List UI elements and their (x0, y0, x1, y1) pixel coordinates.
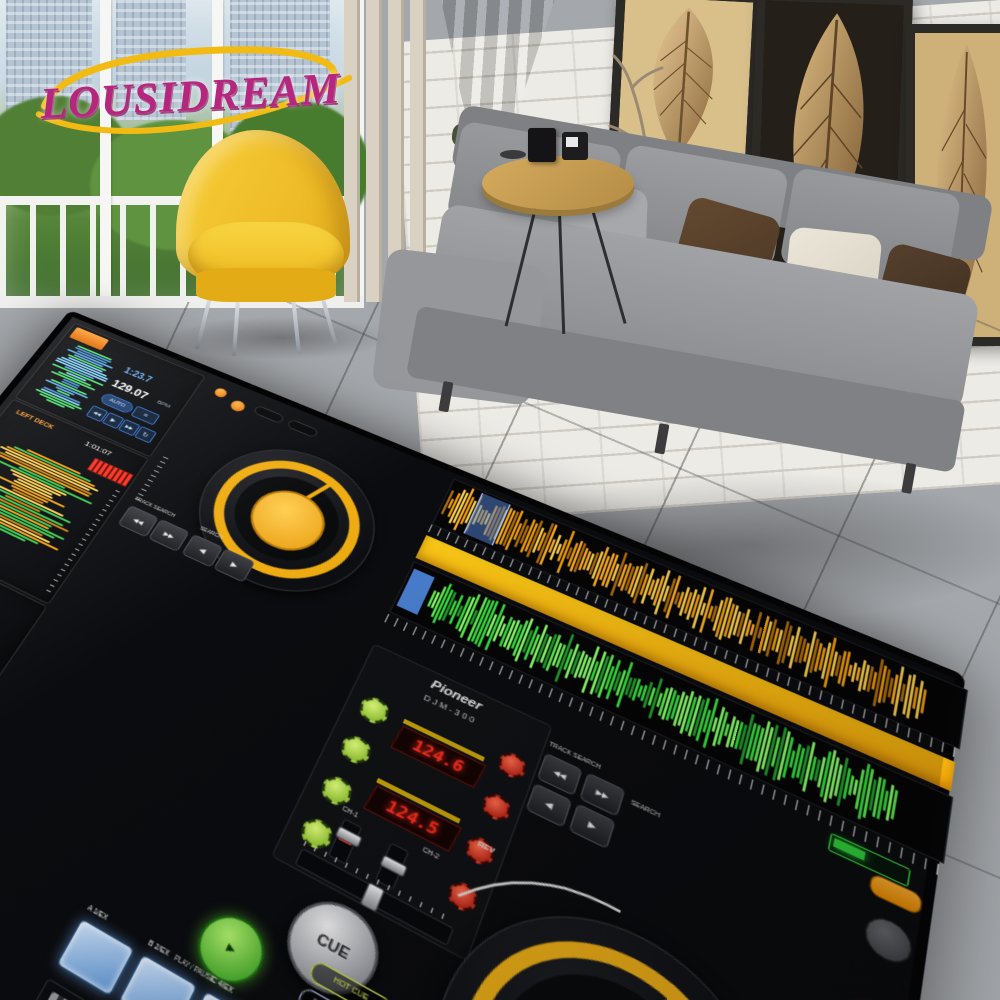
remain-time: 3:29.9 (0, 605, 2, 636)
table-speaker (562, 132, 588, 160)
waveform-mini (25, 341, 122, 420)
bpm-label: BPM (156, 400, 171, 409)
prev-glyph: ◀◀ (552, 767, 567, 780)
pad-b-label: B 2/EX (146, 941, 170, 959)
browse-knob (862, 910, 915, 971)
utility-button (253, 405, 285, 424)
prev-glyph: ◀◀ (132, 516, 145, 526)
gain-knob-red (479, 790, 514, 825)
table-clock (528, 128, 556, 162)
yellow-armchair (176, 130, 372, 346)
play-pause-button: ▶ (186, 903, 276, 997)
next-glyph: ▶▶ (162, 530, 175, 540)
eq-knob-green (356, 693, 393, 728)
left-deck-time: 1:01:07 (83, 440, 113, 457)
search-label-2: SEARCH (630, 801, 660, 820)
gain-knob-red (495, 749, 529, 783)
forward-glyph: ▶▶ (124, 424, 134, 432)
back-glyph: ◀ (197, 546, 207, 555)
menu-glyph: ≡ (142, 412, 149, 419)
loop-glyph: ↻ (141, 431, 151, 439)
pad-beat: 2/EX (152, 943, 170, 959)
play-glyph: ▶ (225, 942, 236, 955)
speaker-face (566, 137, 578, 147)
chair-leg (291, 296, 301, 354)
table-dish (500, 150, 526, 159)
table-top (482, 156, 634, 210)
brand-overlay: LOUSIDREAM (26, 35, 367, 156)
fader-knob (380, 854, 408, 877)
eject-button (213, 387, 229, 399)
jog-wheel-1 (169, 426, 400, 620)
utility-button (286, 419, 319, 439)
play-glyph: ▶ (109, 417, 117, 424)
cue-led-button (229, 399, 248, 413)
progress-fill (833, 838, 865, 860)
back-glyph: ◀ (544, 799, 554, 811)
eq-knob-green (337, 731, 375, 768)
next-glyph: ▶▶ (595, 788, 610, 802)
ch1-label: CH-1 (341, 807, 358, 820)
performance-pad-a (56, 918, 135, 997)
fwd-glyph: ▶ (587, 820, 597, 833)
cue-label: CUE (314, 931, 352, 963)
fwd-glyph: ▶ (229, 561, 239, 571)
chair-front (196, 268, 336, 302)
rewind-glyph: ◀◀ (92, 410, 102, 417)
living-room-scene: 1:23.7 129.07 BPM AUTO ≡ ◀◀ ▶ ▶▶ ↻ LEFT … (0, 0, 1000, 1000)
couch-leg (901, 463, 916, 494)
pad-beat: 1/EX (91, 907, 109, 922)
auto-badge-label: AUTO (108, 398, 127, 409)
pad-a-label: A 1/EX (86, 905, 109, 922)
eq-knob-green (317, 772, 356, 810)
couch-leg (654, 423, 669, 454)
chair-leg (195, 292, 213, 349)
